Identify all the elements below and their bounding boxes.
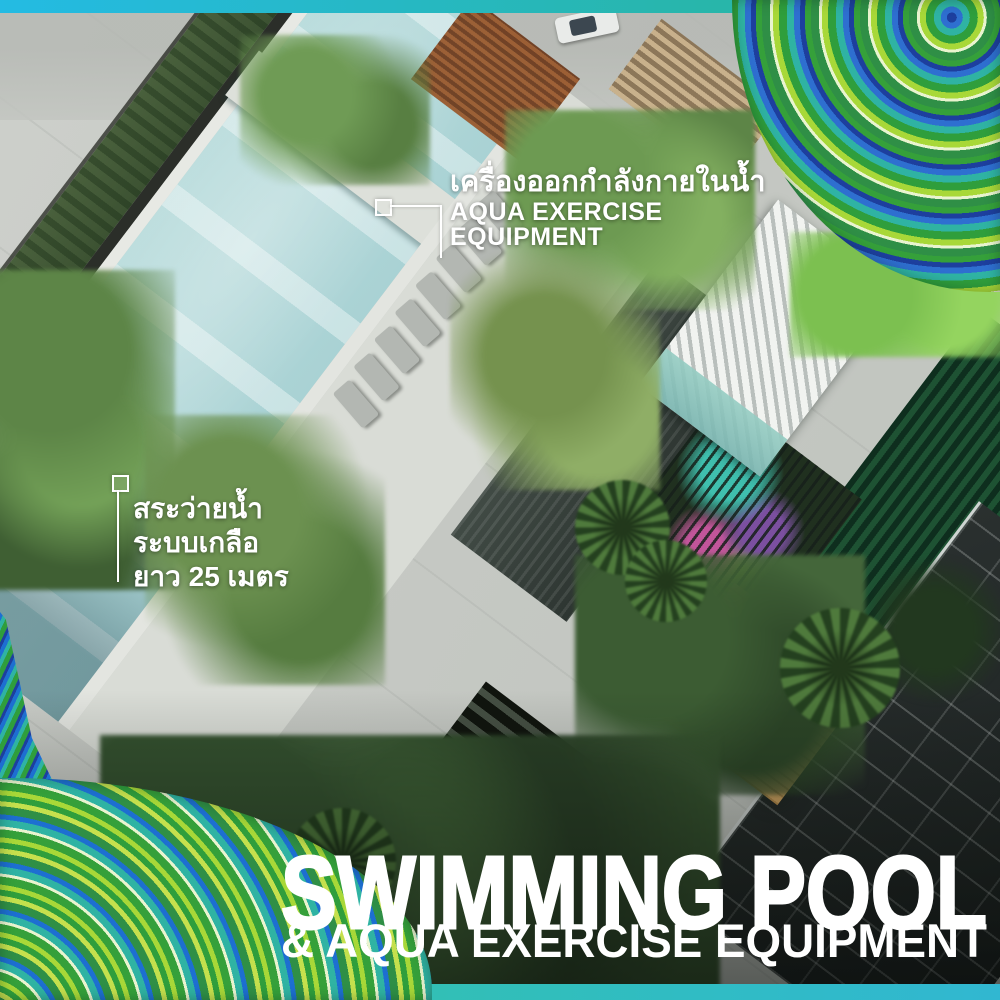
tree-canopy	[450, 245, 660, 490]
promo-image: เครื่องออกกำลังกายในน้ำ AQUA EXERCISE EQ…	[0, 0, 1000, 1000]
callout-pool-line3: ยาว 25 เมตร	[133, 560, 353, 594]
callout-pool-line2: ระบบเกลือ	[133, 526, 353, 560]
palm-tree	[625, 540, 707, 622]
callout-aqua-thai-text: เครื่องออกกำลังกายในน้ำ	[450, 164, 780, 200]
callout-aqua-en-line1: AQUA EXERCISE	[450, 200, 780, 225]
callout-leader-line	[117, 490, 119, 582]
car-windshield	[569, 15, 598, 36]
callout-aqua-en-line2: EQUIPMENT	[450, 225, 780, 250]
page-subtitle: & AQUA EXERCISE EQUIPMENT	[281, 914, 987, 967]
title-block: SWIMMING POOL & AQUA EXERCISE EQUIPMENT	[281, 840, 993, 970]
callout-leader-line	[390, 205, 440, 207]
callout-marker-icon	[375, 199, 392, 216]
callout-leader-line	[440, 205, 442, 258]
callout-pool: สระว่ายน้ำ ระบบเกลือ ยาว 25 เมตร	[133, 492, 353, 594]
callout-aqua-equipment: เครื่องออกกำลังกายในน้ำ AQUA EXERCISE EQ…	[450, 164, 780, 250]
callout-marker-icon	[112, 475, 129, 492]
callout-pool-line1: สระว่ายน้ำ	[133, 492, 353, 526]
tree-canopy	[240, 35, 430, 185]
